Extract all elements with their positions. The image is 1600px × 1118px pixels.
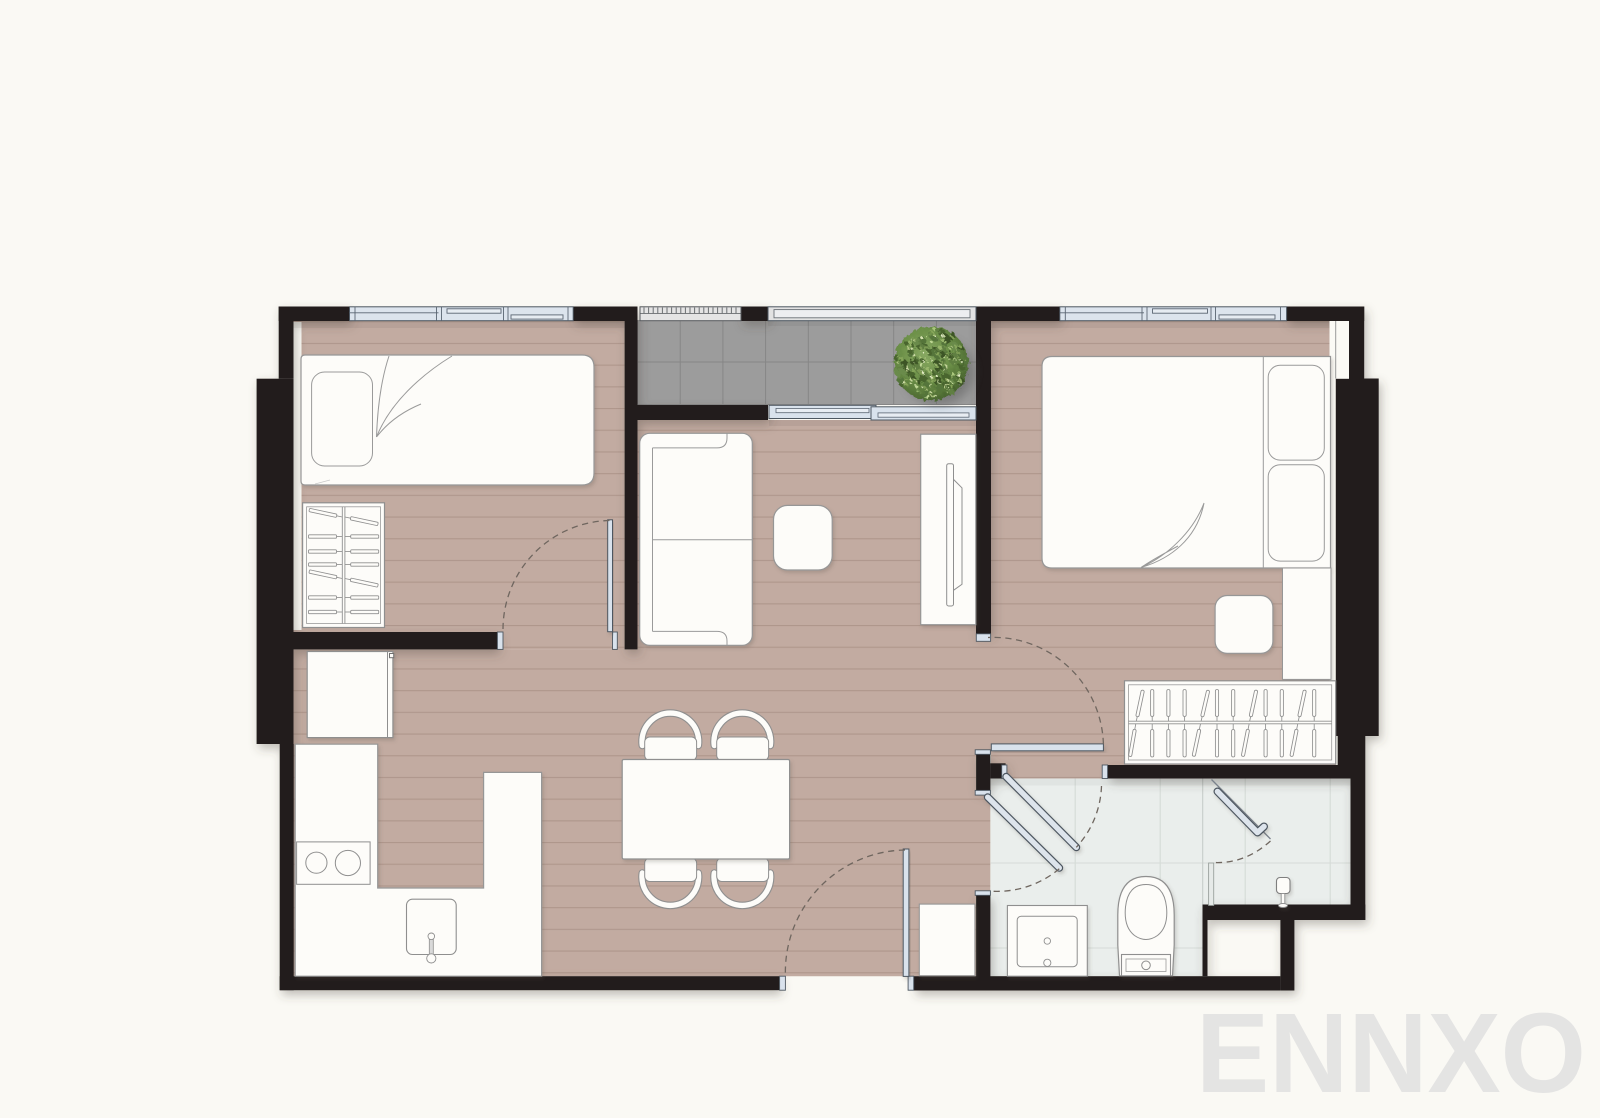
svg-text:ENNXO: ENNXO — [1196, 990, 1586, 1116]
